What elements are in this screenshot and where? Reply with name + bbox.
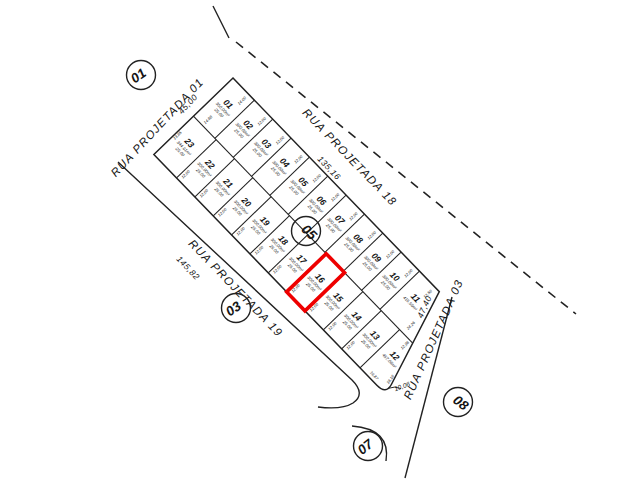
quadra-badge-07: 07: [354, 432, 383, 461]
rua-projetada-01-far-edge: [213, 6, 229, 38]
cadastral-plan: 01350,00m²25,0014,0002300,00m²25,0012,00…: [0, 0, 640, 480]
quadra-badge-01: 01: [127, 61, 156, 90]
quadra-badge-label-08: 08: [450, 392, 471, 413]
quadra-badge-08: 08: [444, 388, 473, 417]
street-measure-145-82: 145,82: [174, 254, 201, 282]
quadra-badge-label-01: 01: [128, 65, 149, 86]
quadra-badge-label-07: 07: [355, 436, 377, 458]
quadra-badge-03: 03: [222, 294, 251, 323]
